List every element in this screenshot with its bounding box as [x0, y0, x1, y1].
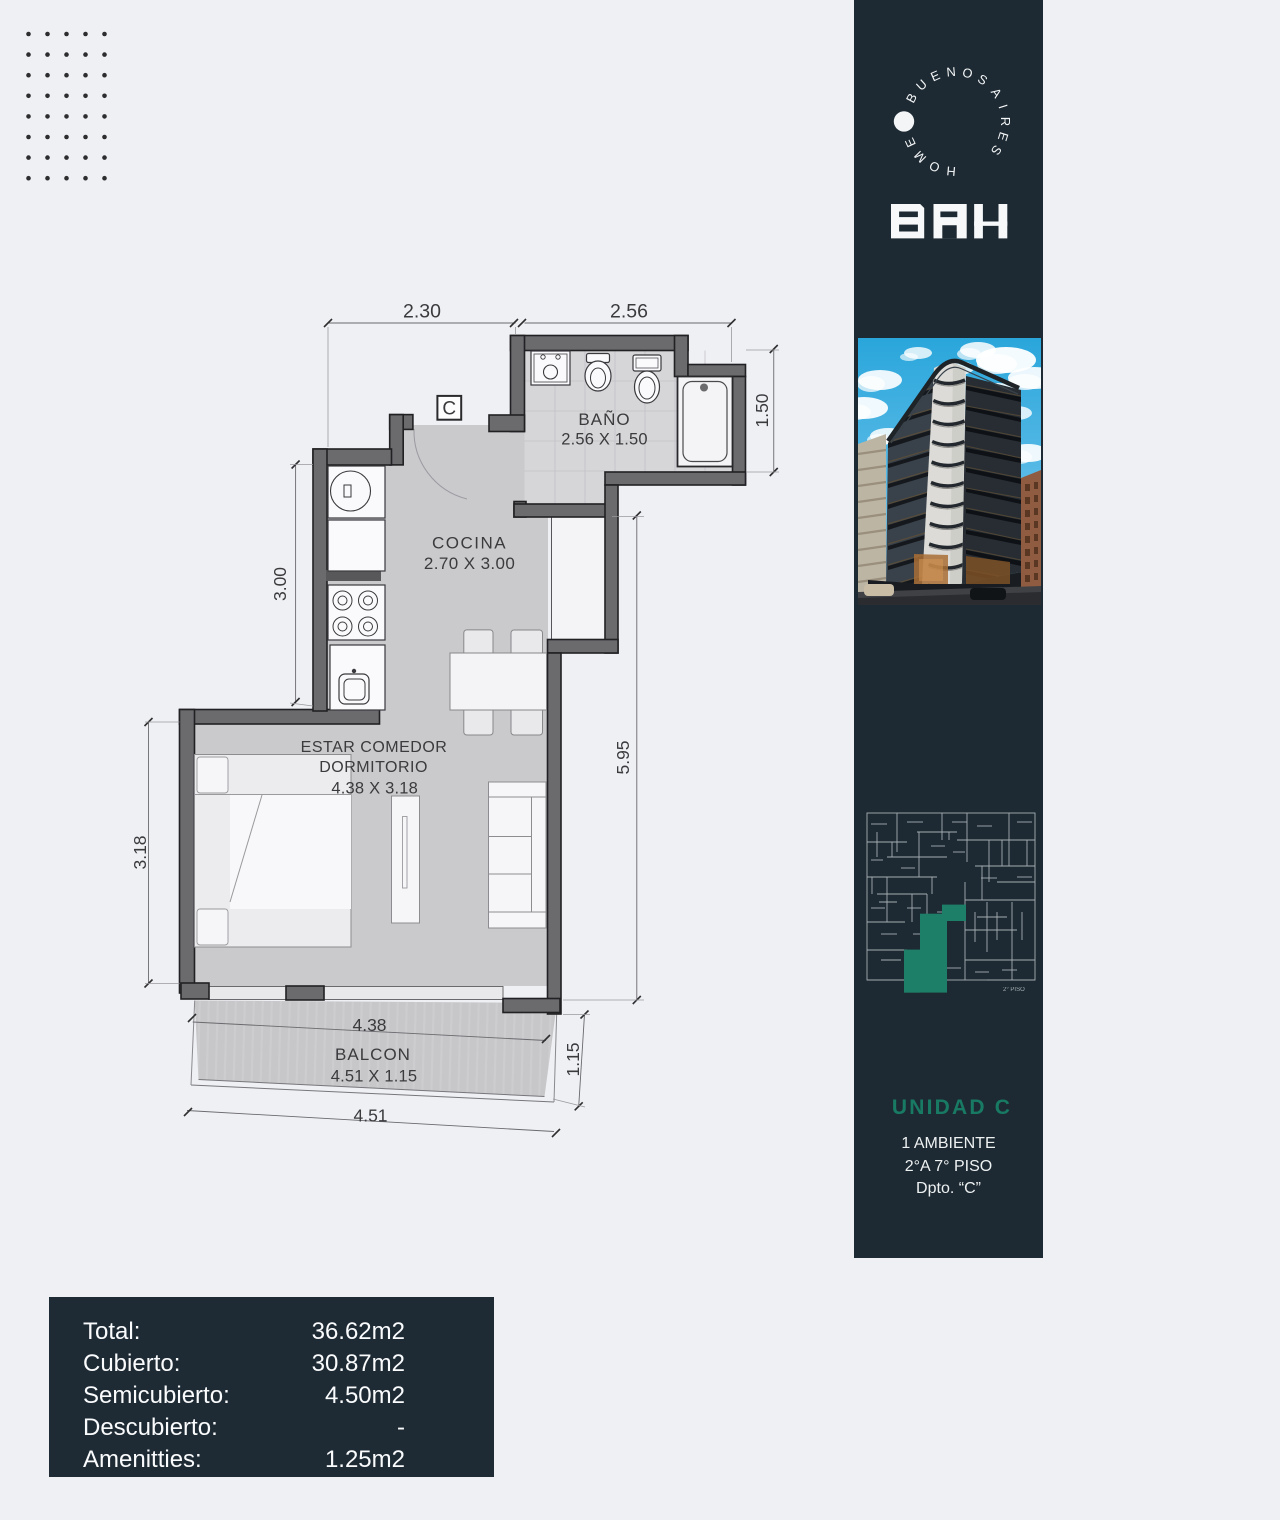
- svg-text:S: S: [988, 142, 1005, 158]
- svg-text:1.15: 1.15: [563, 1042, 583, 1076]
- svg-text:1.50: 1.50: [752, 393, 772, 427]
- svg-text:A: A: [988, 85, 1005, 101]
- svg-text:E: E: [995, 130, 1012, 143]
- svg-text:BALCON: BALCON: [335, 1045, 411, 1064]
- svg-text:C: C: [442, 399, 456, 420]
- svg-text:M: M: [911, 148, 929, 166]
- svg-text:COCINA: COCINA: [432, 534, 507, 553]
- svg-text:S: S: [975, 71, 990, 88]
- svg-text:N: N: [946, 64, 957, 80]
- svg-text:2.70 X 3.00: 2.70 X 3.00: [424, 554, 515, 573]
- svg-text:2.30: 2.30: [403, 301, 441, 323]
- svg-text:O: O: [961, 65, 974, 82]
- svg-text:I: I: [996, 103, 1011, 111]
- svg-text:O: O: [927, 158, 942, 176]
- svg-text:2° PISO: 2° PISO: [1003, 987, 1025, 993]
- svg-text:E: E: [928, 67, 942, 84]
- svg-text:2.56: 2.56: [610, 301, 648, 323]
- svg-text:B: B: [903, 91, 920, 106]
- svg-text:4.51: 4.51: [353, 1106, 387, 1126]
- svg-text:4.51 X 1.15: 4.51 X 1.15: [331, 1068, 418, 1086]
- svg-text:4.38: 4.38: [352, 1015, 386, 1035]
- svg-text:U: U: [913, 76, 930, 93]
- svg-text:5.95: 5.95: [613, 740, 633, 774]
- svg-text:4.38 X 3.18: 4.38 X 3.18: [331, 780, 418, 798]
- svg-text:3.00: 3.00: [270, 567, 290, 601]
- svg-text:BAÑO: BAÑO: [578, 410, 630, 429]
- svg-text:DORMITORIO: DORMITORIO: [319, 759, 428, 776]
- svg-text:E: E: [902, 136, 919, 150]
- svg-text:H: H: [946, 163, 957, 179]
- svg-text:R: R: [998, 117, 1013, 126]
- svg-text:2.56 X 1.50: 2.56 X 1.50: [561, 431, 648, 449]
- svg-text:3.18: 3.18: [130, 835, 150, 869]
- svg-text:ESTAR COMEDOR: ESTAR COMEDOR: [301, 739, 448, 756]
